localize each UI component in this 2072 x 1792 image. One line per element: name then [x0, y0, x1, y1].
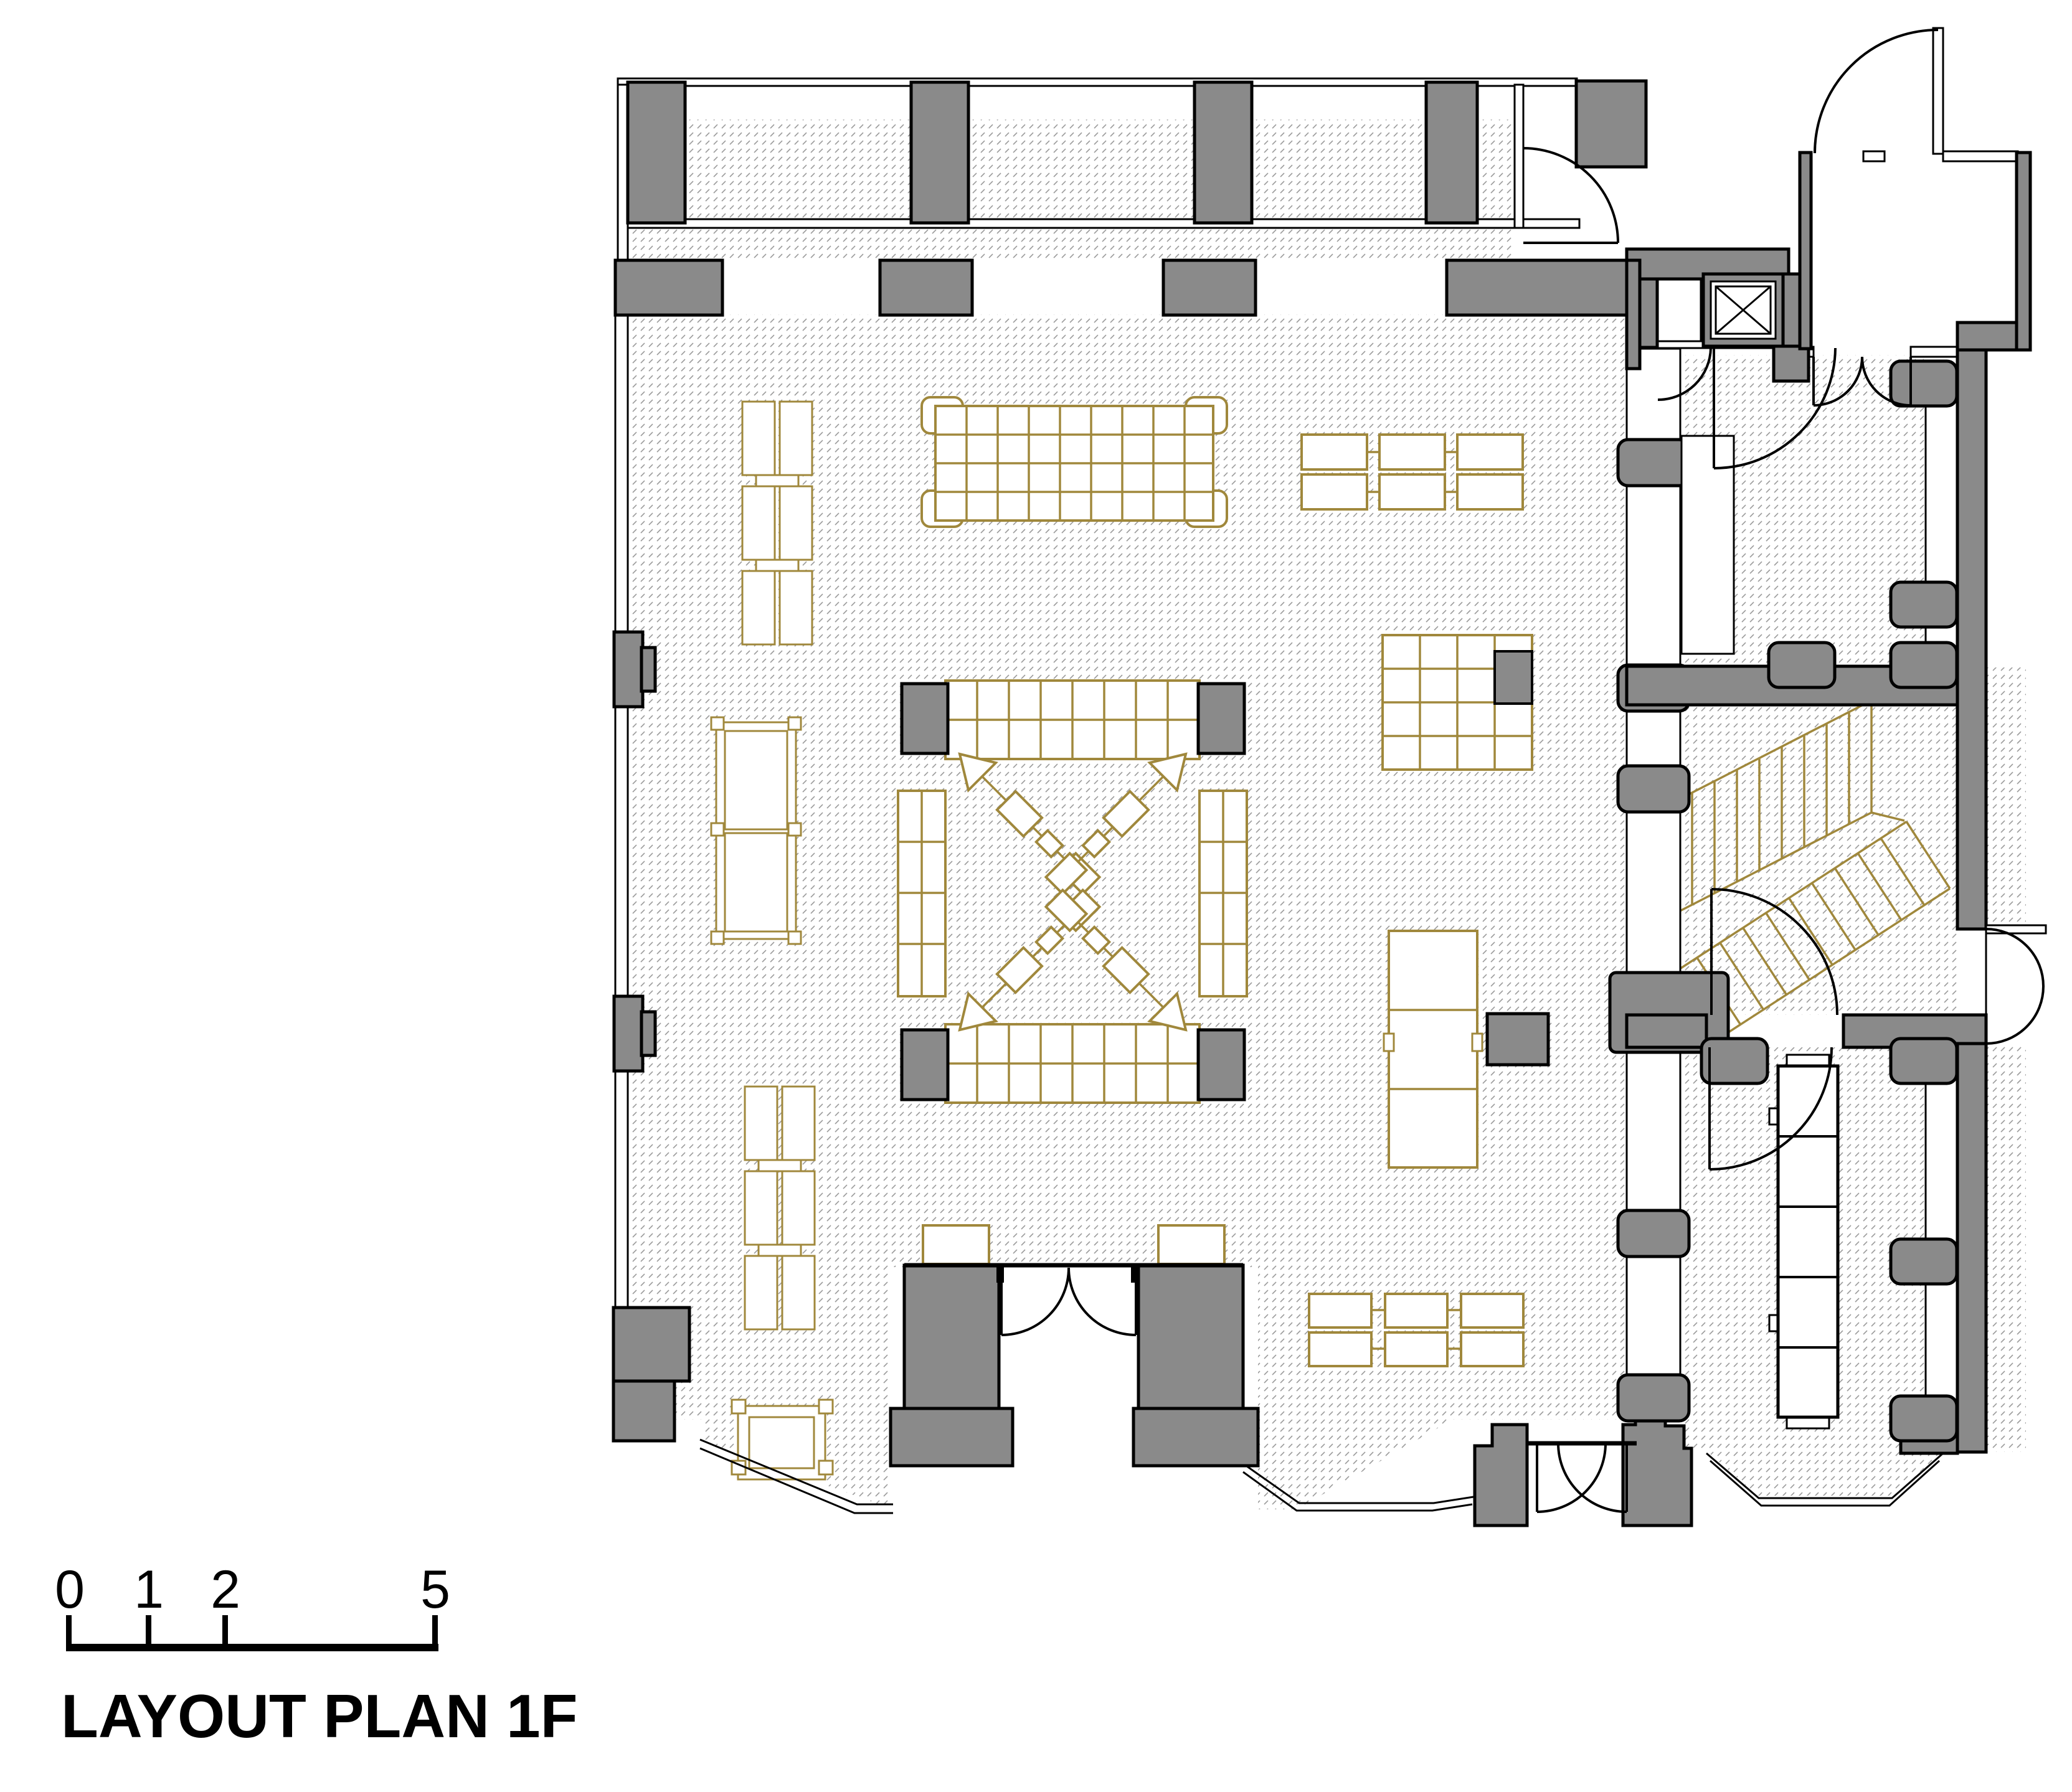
- hall-wing-partition: [1627, 349, 1680, 1421]
- facade-corner-pier: [1576, 81, 1646, 167]
- shopfront-glazing: [627, 219, 1515, 228]
- wall-stair-bottom-room-left: [1627, 1015, 1706, 1047]
- column-square-tr: [1198, 684, 1244, 753]
- column-square-tl: [902, 684, 948, 753]
- porch-entry-door: [1815, 28, 1943, 154]
- column-square-br: [1198, 1030, 1244, 1100]
- top-display-band-floor: [627, 120, 1515, 260]
- column-in-grid: [1495, 651, 1532, 704]
- scale-bar-baseline: [66, 1644, 438, 1651]
- scale-tick-label-1: 1: [134, 1560, 164, 1620]
- exterior-wall-right-upper: [1957, 349, 1986, 929]
- colonnade-block-1: [615, 260, 722, 315]
- plan-title: LAYOUT PLAN 1F: [61, 1682, 577, 1750]
- facade-pier-1: [628, 82, 685, 223]
- freestanding-column: [1487, 1014, 1548, 1065]
- entrance-pedestal-right: [1158, 1225, 1224, 1264]
- scale-tick-label-5: 5: [420, 1560, 450, 1620]
- facade-pier-2: [911, 82, 968, 223]
- half-round-exit-door: [1986, 925, 2046, 1044]
- vestibule-left-wall: [1800, 153, 1811, 349]
- display-case: [1769, 1055, 1838, 1428]
- closet: [1657, 279, 1701, 341]
- side-exterior-double-door: [1537, 1443, 1627, 1512]
- grid-table-4x4: [1383, 635, 1532, 770]
- colonnade-block-2: [880, 260, 972, 315]
- corner-pier-bottom-left: [613, 1308, 689, 1381]
- exterior-strip-upper: [1986, 667, 2026, 929]
- facade-pier-4: [1426, 82, 1477, 223]
- scale-tick-label-0: 0: [55, 1560, 85, 1620]
- left-window-wall: [615, 314, 628, 1309]
- colonnade-block-3: [1163, 260, 1256, 315]
- porch-right-wall: [2017, 153, 2030, 350]
- facade-pier-3: [1194, 82, 1252, 223]
- scale-tick-1: [146, 1615, 151, 1649]
- pedestal-table: [1384, 931, 1482, 1167]
- stepped-pier-left: [1475, 1425, 1527, 1526]
- scale-tick-0: [66, 1615, 72, 1649]
- entrance-pedestal-left: [923, 1225, 989, 1264]
- scale-tick-2: [222, 1615, 228, 1649]
- column-square-bl: [902, 1030, 948, 1100]
- scale-tick-label-2: 2: [211, 1560, 240, 1620]
- exterior-wall-right-lower: [1957, 1044, 1986, 1452]
- ornate-double-table: [711, 717, 801, 944]
- colonnade-block-4: [1447, 260, 1640, 315]
- floor-plan-drawing: 0 1 2 5 LAYOUT PLAN 1F: [0, 0, 2072, 1792]
- stair-room-floor: [1680, 705, 1957, 1015]
- scale-bar: 0 1 2 5: [55, 1560, 450, 1651]
- grid-table-large: [922, 397, 1227, 527]
- elevator-shaft: [1703, 274, 1783, 346]
- scale-tick-5: [432, 1615, 438, 1649]
- exterior-strip-lower: [1986, 1044, 2026, 1452]
